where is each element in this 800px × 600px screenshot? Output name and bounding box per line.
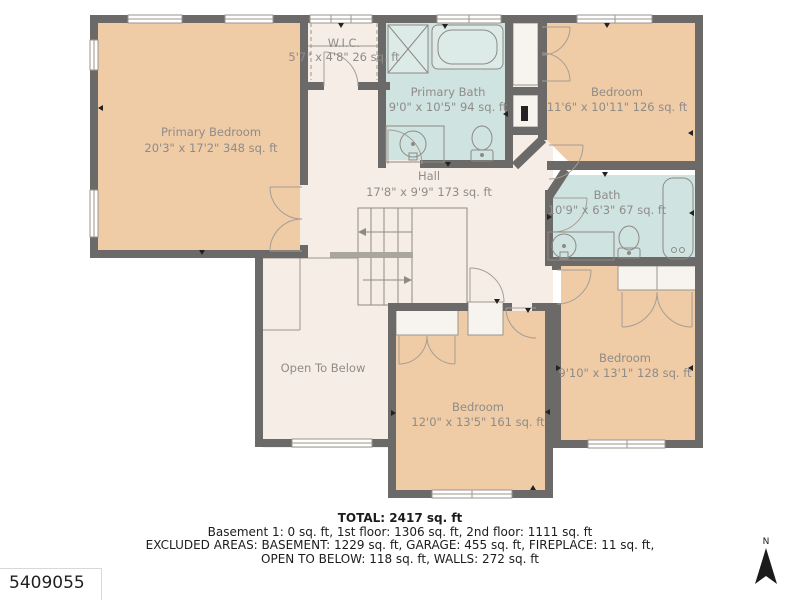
floorplan-page: Primary Bedroom 20'3" x 17'2" 348 sq. ft… bbox=[0, 0, 800, 600]
shower bbox=[388, 25, 428, 73]
wic-dims: 5'7" x 4'8" 26 sq. ft bbox=[288, 50, 400, 64]
bedroom4-closet bbox=[396, 307, 458, 335]
bedroom3-label: Bedroom bbox=[599, 351, 651, 365]
window bbox=[225, 15, 273, 23]
bedroom4-dims: 12'0" x 13'5" 161 sq. ft bbox=[411, 415, 545, 429]
north-arrow: N bbox=[748, 530, 784, 590]
excluded-areas-1: EXCLUDED AREAS: BASEMENT: 1229 sq. ft, G… bbox=[0, 539, 800, 553]
window bbox=[432, 490, 512, 498]
bedroom2-closet bbox=[513, 23, 538, 85]
wic-label: W.I.C. bbox=[328, 36, 360, 50]
hall-dims: 17'8" x 9'9" 173 sq. ft bbox=[366, 185, 492, 199]
primary-bedroom-label: Primary Bedroom bbox=[161, 125, 261, 139]
window bbox=[588, 440, 665, 448]
bedroom4-label: Bedroom bbox=[452, 400, 504, 414]
bath2-dims: 10'9" x 6'3" 67 sq. ft bbox=[548, 203, 667, 217]
total-area: TOTAL: 2417 sq. ft bbox=[0, 512, 800, 526]
floor-areas: Basement 1: 0 sq. ft, 1st floor: 1306 sq… bbox=[0, 526, 800, 540]
floorplan-drawing: Primary Bedroom 20'3" x 17'2" 348 sq. ft… bbox=[0, 0, 800, 512]
hall-closet bbox=[468, 302, 503, 335]
north-label: N bbox=[763, 537, 770, 547]
north-arrow-icon bbox=[755, 548, 777, 584]
primary-bedroom-dims: 20'3" x 17'2" 348 sq. ft bbox=[144, 141, 278, 155]
bedroom2-label: Bedroom bbox=[591, 85, 643, 99]
open-to-below-label: Open To Below bbox=[281, 361, 366, 375]
excluded-areas-2: OPEN TO BELOW: 118 sq. ft, WALLS: 272 sq… bbox=[0, 553, 800, 567]
bedroom2-dims: 11'6" x 10'11" 126 sq. ft bbox=[547, 100, 688, 114]
bedroom3-dims: 9'10" x 13'1" 128 sq. ft bbox=[558, 366, 692, 380]
bathtub-primary bbox=[432, 25, 503, 69]
listing-id: 5409055 bbox=[0, 568, 102, 600]
window bbox=[437, 15, 501, 23]
primary-bath-dims: 9'0" x 10'5" 94 sq. ft bbox=[389, 100, 508, 114]
window bbox=[292, 439, 372, 447]
hall-label: Hall bbox=[418, 169, 440, 183]
window bbox=[90, 190, 98, 237]
window bbox=[577, 15, 652, 23]
window bbox=[128, 15, 182, 23]
stair-rail bbox=[330, 252, 413, 258]
primary-bath-label: Primary Bath bbox=[411, 85, 486, 99]
window bbox=[310, 15, 372, 23]
area-summary: TOTAL: 2417 sq. ft Basement 1: 0 sq. ft,… bbox=[0, 512, 800, 566]
window bbox=[90, 40, 98, 70]
closet-door-marker bbox=[521, 106, 528, 121]
bath2-label: Bath bbox=[594, 188, 621, 202]
